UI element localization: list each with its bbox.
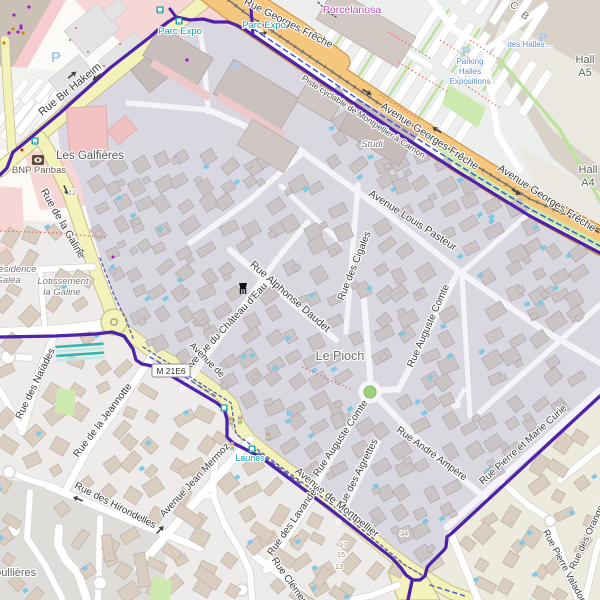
svg-text:Résidence: Résidence — [0, 264, 36, 275]
svg-text:Moullières: Moullières — [0, 567, 37, 579]
svg-text:Studi: Studi — [361, 139, 384, 150]
svg-text:12: 12 — [68, 188, 76, 197]
svg-text:A5: A5 — [578, 67, 591, 79]
svg-text:P: P — [462, 44, 471, 59]
svg-text:Hall: Hall — [579, 164, 598, 176]
svg-text:Lotissement: Lotissement — [37, 276, 89, 287]
svg-text:P: P — [231, 59, 240, 75]
svg-text:BNP Paribas: BNP Paribas — [12, 165, 66, 176]
svg-text:M 21E6: M 21E6 — [156, 366, 186, 376]
svg-text:34: 34 — [400, 529, 408, 538]
svg-text:A4: A4 — [581, 177, 594, 189]
svg-text:Hall: Hall — [576, 54, 595, 66]
svg-text:Galéa: Galéa — [0, 275, 21, 286]
svg-text:Expositions: Expositions — [450, 77, 491, 86]
svg-text:Les Galfières: Les Galfières — [56, 150, 124, 162]
svg-text:Launes: Launes — [235, 453, 265, 463]
svg-text:Halles: Halles — [459, 67, 481, 76]
svg-text:Le Pioch: Le Pioch — [316, 349, 365, 363]
svg-text:P: P — [51, 49, 61, 66]
svg-text:Parc Expo: Parc Expo — [158, 26, 202, 37]
svg-text:17: 17 — [339, 540, 347, 549]
svg-text:Porcelanosa: Porcelanosa — [323, 4, 382, 16]
svg-text:15: 15 — [337, 550, 345, 559]
svg-text:la Galine: la Galine — [43, 287, 81, 298]
svg-text:13: 13 — [335, 562, 343, 571]
svg-text:P: P — [539, 31, 547, 45]
svg-text:Parc Expo: Parc Expo — [242, 20, 286, 31]
